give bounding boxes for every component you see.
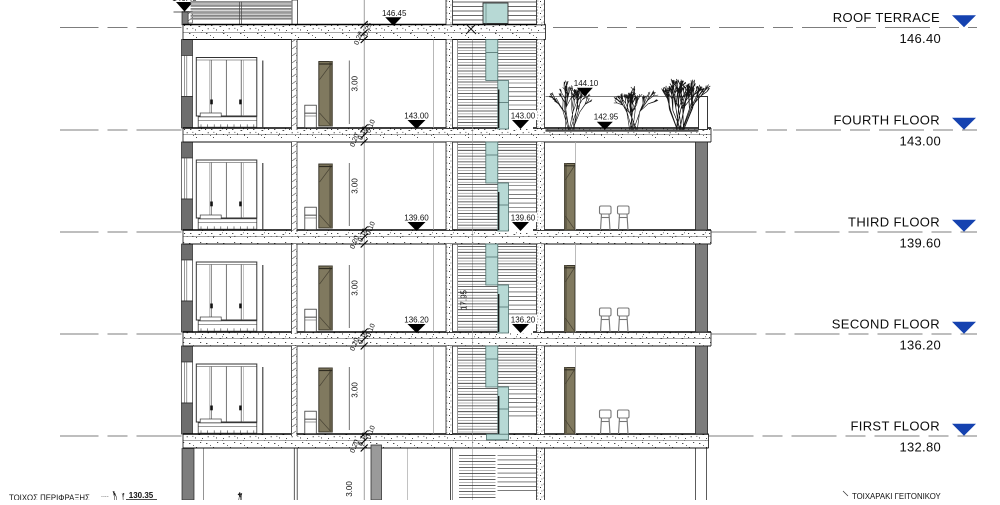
svg-text:SECOND FLOOR: SECOND FLOOR bbox=[832, 317, 940, 332]
svg-text:130.35: 130.35 bbox=[129, 491, 154, 500]
svg-text:ROOF TERRACE: ROOF TERRACE bbox=[833, 10, 940, 25]
svg-text:136.20: 136.20 bbox=[511, 316, 536, 325]
svg-text:3.00: 3.00 bbox=[345, 481, 354, 497]
svg-text:FOURTH FLOOR: FOURTH FLOOR bbox=[833, 113, 940, 128]
svg-text:3.00: 3.00 bbox=[350, 382, 359, 398]
svg-text:....: .... bbox=[101, 492, 109, 499]
svg-text:3.00: 3.00 bbox=[350, 75, 359, 91]
svg-text:146.40: 146.40 bbox=[899, 31, 941, 46]
svg-text:139.60: 139.60 bbox=[404, 214, 429, 223]
svg-text:139.60: 139.60 bbox=[899, 236, 941, 251]
svg-text:142.95: 142.95 bbox=[594, 113, 619, 122]
svg-text:143.00: 143.00 bbox=[899, 134, 941, 149]
svg-text:136.20: 136.20 bbox=[404, 316, 429, 325]
svg-text:THIRD FLOOR: THIRD FLOOR bbox=[848, 215, 940, 230]
svg-text:146.45: 146.45 bbox=[382, 9, 407, 18]
svg-text:143.00: 143.00 bbox=[404, 112, 429, 121]
svg-text:3.00: 3.00 bbox=[350, 178, 359, 194]
svg-text:3.00: 3.00 bbox=[350, 280, 359, 296]
svg-text:FIRST FLOOR: FIRST FLOOR bbox=[850, 419, 940, 434]
svg-text:139.60: 139.60 bbox=[511, 214, 536, 223]
svg-text:136.20: 136.20 bbox=[899, 338, 941, 353]
svg-text:132.80: 132.80 bbox=[899, 440, 941, 455]
svg-text:144.10: 144.10 bbox=[574, 79, 599, 88]
svg-text:ΤΟΙΧΑΡΑΚΙ ΓΕΙΤΟΝΙΚΟΥ: ΤΟΙΧΑΡΑΚΙ ΓΕΙΤΟΝΙΚΟΥ bbox=[852, 492, 942, 500]
svg-text:143.00: 143.00 bbox=[511, 112, 536, 121]
svg-text:ΤΟΙΧΟΣ ΠΕΡΙΦΡΑΞΗΣ: ΤΟΙΧΟΣ ΠΕΡΙΦΡΑΞΗΣ bbox=[9, 494, 90, 501]
